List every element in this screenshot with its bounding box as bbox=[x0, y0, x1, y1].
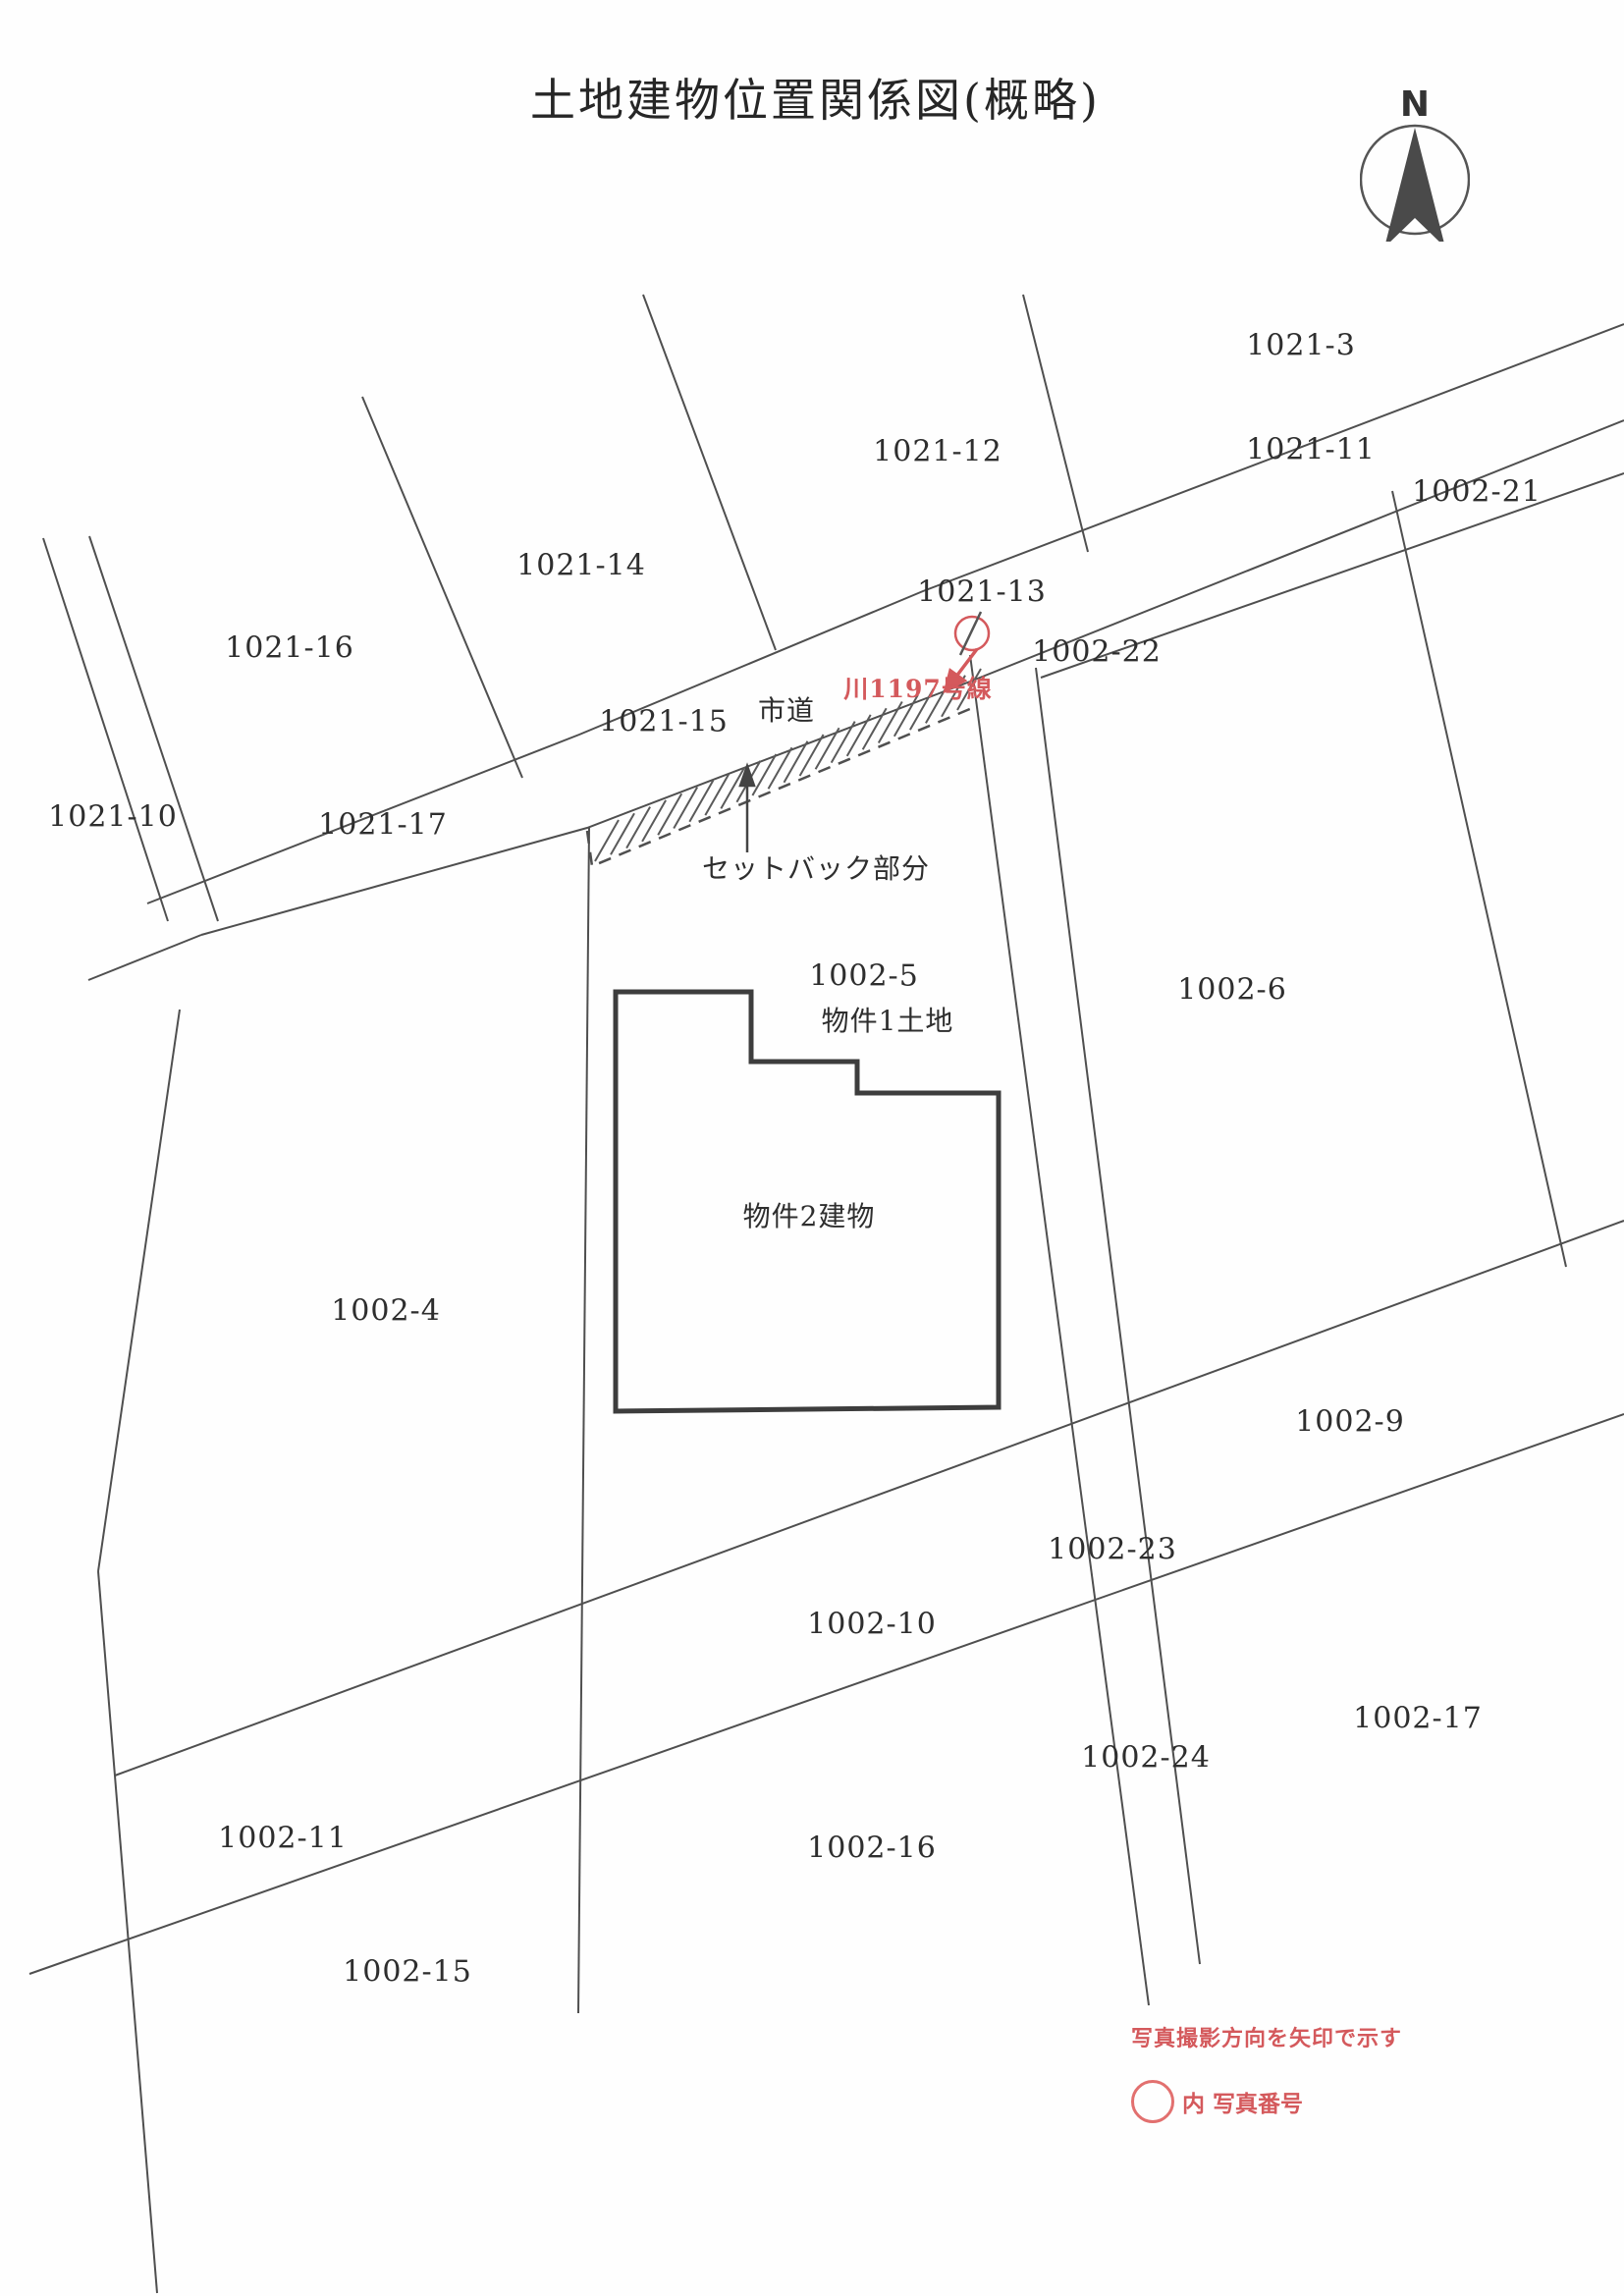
parcel-label-1002-24: 1002-24 bbox=[1081, 1741, 1211, 1776]
boundary-1021-14-12 bbox=[643, 295, 776, 650]
parcel-label-1002-5: 1002-5 bbox=[809, 959, 919, 994]
hatch-stroke bbox=[705, 774, 729, 815]
boundary-lines bbox=[29, 295, 1624, 2293]
left-corridor-east bbox=[89, 536, 218, 921]
photo-number-circle-icon bbox=[1131, 2080, 1174, 2123]
parcel-label-1021-3: 1021-3 bbox=[1246, 329, 1356, 363]
legend-line2: 内 写真番号 bbox=[1182, 2085, 1303, 2118]
setback-label: セットバック部分 bbox=[702, 847, 930, 887]
property2-building-label: 物件2建物 bbox=[743, 1195, 876, 1234]
setback-arrow bbox=[740, 766, 754, 852]
legend-line1: 写真撮影方向を矢印で示す bbox=[1131, 2021, 1543, 2052]
parcel-label-1002-16: 1002-16 bbox=[807, 1831, 937, 1866]
hatch-stroke bbox=[721, 767, 744, 808]
boundary-1002-4-east bbox=[578, 827, 589, 2013]
hatch-stroke bbox=[847, 715, 871, 756]
photo-legend: 写真撮影方向を矢印で示す 内 写真番号 bbox=[1131, 2021, 1543, 2123]
parcel-label-1002-23: 1002-23 bbox=[1048, 1533, 1177, 1567]
parcel-label-1021-14: 1021-14 bbox=[516, 549, 646, 583]
parcel-label-1021-13: 1021-13 bbox=[917, 575, 1047, 610]
parcel-label-1002-10: 1002-10 bbox=[807, 1608, 937, 1642]
parcel-label-1021-12: 1021-12 bbox=[873, 435, 1002, 469]
hatch-stroke bbox=[595, 820, 619, 861]
parcel-label-1002-4: 1002-4 bbox=[331, 1294, 441, 1329]
boundary-diagonal-lower bbox=[29, 1414, 1624, 1974]
parcel-label-1002-11: 1002-11 bbox=[218, 1822, 348, 1856]
hatch-stroke bbox=[611, 813, 634, 854]
parcel-label-1002-21: 1002-21 bbox=[1412, 475, 1542, 510]
parcel-label-1002-6: 1002-6 bbox=[1177, 973, 1287, 1008]
parcel-label-1021-10: 1021-10 bbox=[48, 800, 178, 835]
parcel-label-1021-17: 1021-17 bbox=[318, 808, 448, 843]
hatch-stroke bbox=[832, 722, 855, 763]
parcel-label-1021-16: 1021-16 bbox=[225, 631, 354, 666]
parcel-label-1021-11: 1021-11 bbox=[1246, 433, 1376, 467]
hatch-stroke bbox=[879, 702, 902, 743]
photo-number-circle-icon bbox=[955, 617, 989, 650]
boundary-1021-16-14 bbox=[362, 397, 522, 778]
parcel-label-1021-15: 1021-15 bbox=[599, 705, 729, 739]
parcel-label-1002-9: 1002-9 bbox=[1295, 1405, 1405, 1440]
hatch-stroke bbox=[863, 708, 887, 749]
hatch-stroke bbox=[800, 735, 824, 776]
road-label: 市道 bbox=[758, 689, 815, 729]
boundary-1021-12-3 bbox=[1023, 295, 1088, 552]
parcel-label-1002-15: 1002-15 bbox=[343, 1955, 472, 1990]
parcel-label-1002-17: 1002-17 bbox=[1353, 1702, 1483, 1736]
property1-land-label: 物件1土地 bbox=[822, 1000, 954, 1039]
parcel-linework bbox=[0, 0, 1624, 2296]
road-stub bbox=[88, 935, 201, 980]
hatch-stroke bbox=[626, 807, 650, 848]
site-plan-page: 土地建物位置関係図(概略) N bbox=[0, 0, 1624, 2296]
river-route-label: 川1197号線 bbox=[843, 670, 993, 705]
parcel-label-1002-22: 1002-22 bbox=[1032, 635, 1162, 670]
hatch-stroke bbox=[816, 728, 839, 769]
boundary-1002-4-west-upper bbox=[98, 1010, 180, 1571]
boundary-1002-6-east bbox=[1392, 491, 1566, 1267]
left-corridor-west bbox=[43, 538, 168, 921]
